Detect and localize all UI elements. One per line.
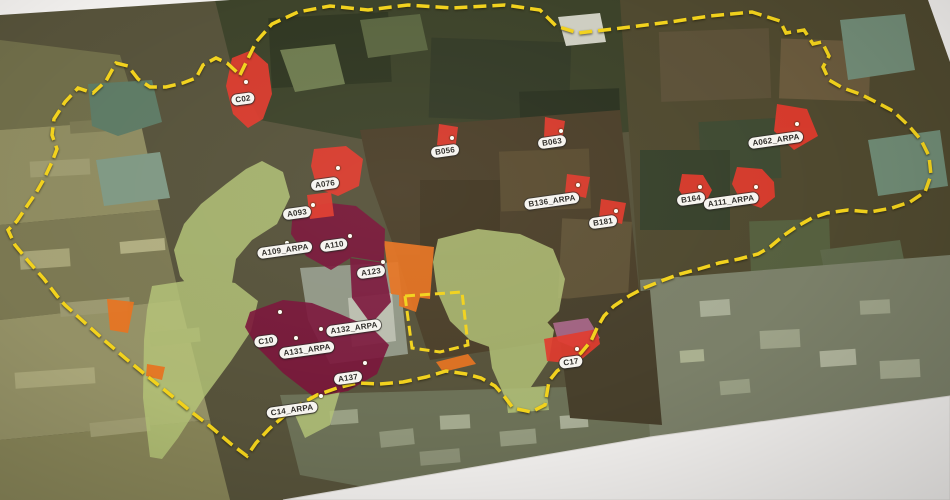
map-photo: C02A076A093A109_ARPAA110A123C10A131_ARPA… xyxy=(0,0,950,500)
satellite-map xyxy=(0,0,950,500)
